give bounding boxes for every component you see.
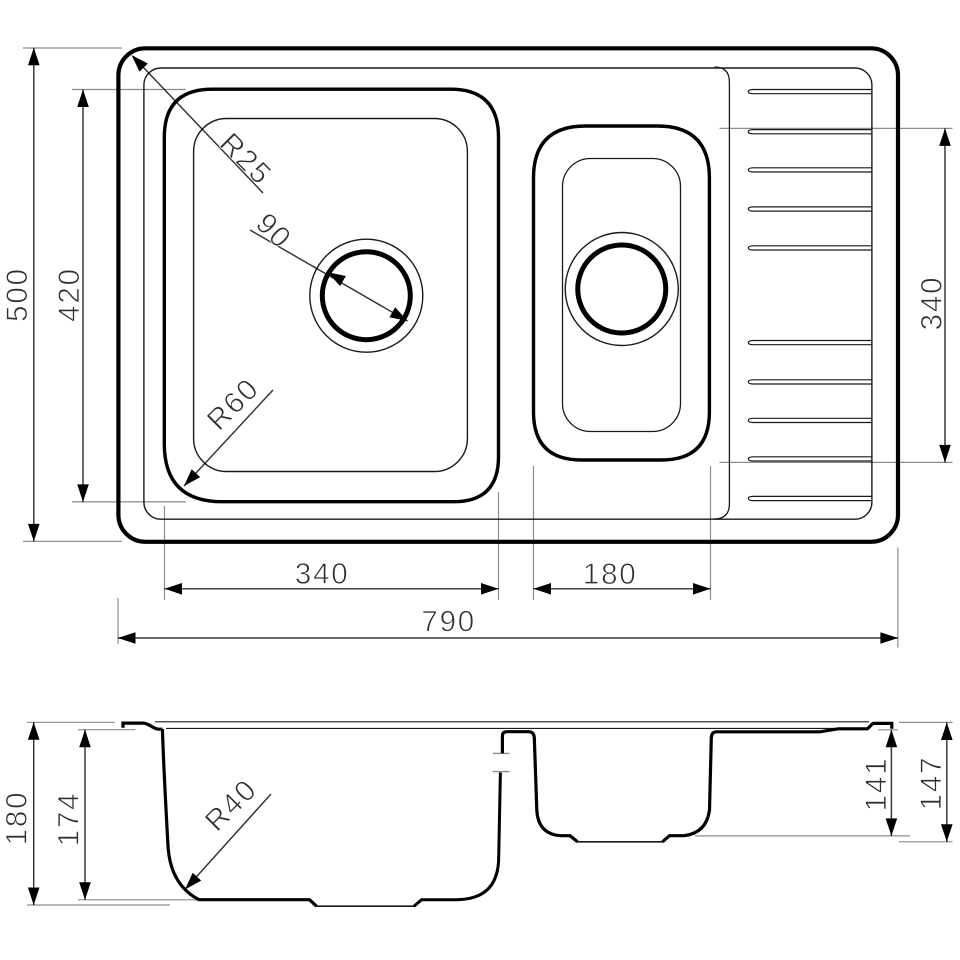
svg-text:R40: R40 — [199, 773, 264, 838]
svg-text:500: 500 — [1, 267, 34, 322]
svg-text:147: 147 — [915, 756, 948, 811]
svg-text:174: 174 — [53, 792, 86, 847]
svg-text:180: 180 — [583, 558, 638, 591]
svg-text:790: 790 — [421, 605, 476, 638]
svg-text:340: 340 — [295, 558, 350, 591]
svg-text:420: 420 — [53, 267, 86, 322]
svg-text:141: 141 — [860, 757, 893, 812]
svg-text:180: 180 — [1, 791, 34, 846]
svg-text:340: 340 — [916, 276, 949, 331]
